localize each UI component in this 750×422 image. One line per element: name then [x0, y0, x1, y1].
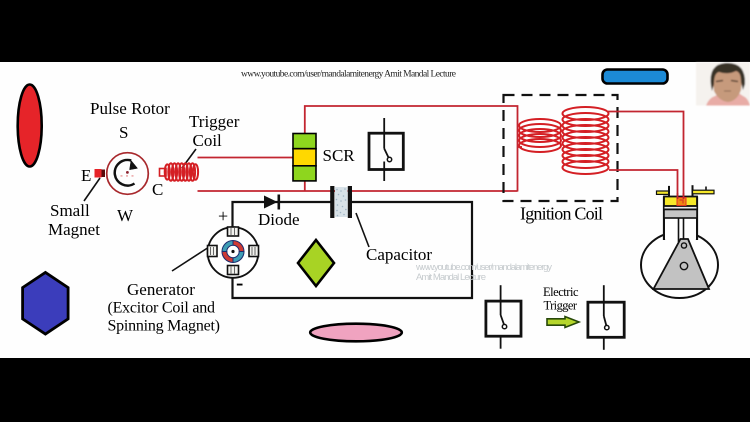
svg-text:www.youtube.com/user/mandalami: www.youtube.com/user/mandalamitenergy Am… [241, 70, 456, 80]
svg-text:Pulse Rotor: Pulse Rotor [90, 99, 170, 118]
svg-text:E: E [81, 166, 91, 185]
svg-text:Trigger: Trigger [189, 112, 240, 131]
svg-text:Spinning Magnet): Spinning Magnet) [108, 318, 221, 335]
svg-text:+: + [218, 206, 228, 226]
svg-text:W: W [117, 206, 134, 225]
svg-text:Small: Small [50, 201, 90, 220]
svg-text:SCR: SCR [323, 146, 356, 165]
svg-text:S: S [119, 123, 128, 142]
svg-text:Coil: Coil [193, 131, 223, 150]
svg-text:Amit Mandal Lecture: Amit Mandal Lecture [416, 272, 486, 283]
svg-text:C: C [152, 180, 163, 199]
svg-text:(Excitor Coil and: (Excitor Coil and [108, 300, 216, 317]
svg-text:Ignition Coil: Ignition Coil [520, 204, 603, 224]
svg-text:Generator: Generator [127, 280, 195, 299]
svg-text:Electric: Electric [543, 285, 579, 299]
svg-text:Magnet: Magnet [48, 220, 100, 239]
svg-text:Diode: Diode [258, 210, 300, 229]
svg-text:Trigger: Trigger [544, 299, 578, 313]
